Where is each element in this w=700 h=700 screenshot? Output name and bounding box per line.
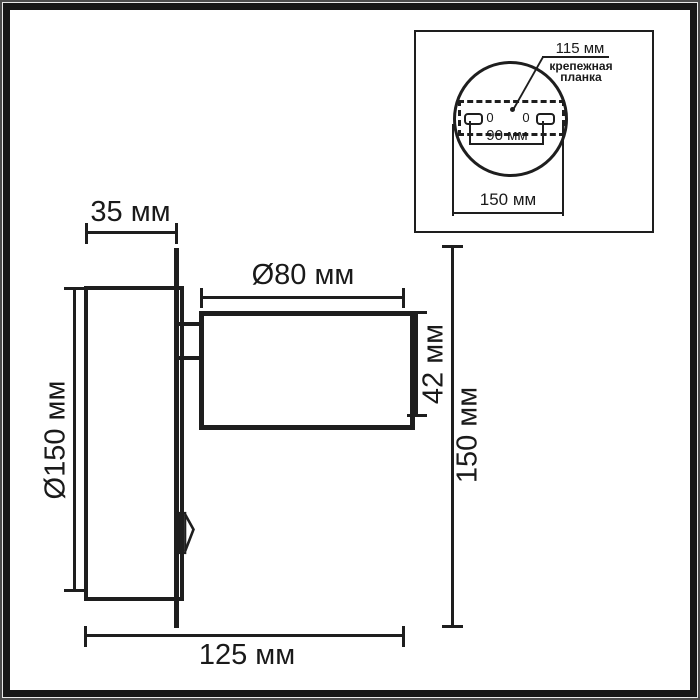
dim-head-height-label: 42 мм — [420, 324, 449, 404]
dim-hole-spacing-ext-left — [469, 121, 471, 145]
dim-overall-depth-label: 125 мм — [147, 641, 347, 670]
plate-label-line2: планка — [541, 71, 621, 83]
wall-plate — [174, 248, 179, 628]
dim-tick — [84, 626, 87, 647]
dim-head-diameter-line — [202, 296, 404, 299]
dim-overall-depth-line — [86, 634, 405, 637]
dim-tick — [402, 288, 405, 308]
dim-tick — [407, 311, 427, 314]
dim-backplate-line — [452, 212, 564, 214]
dim-tick — [64, 287, 85, 290]
dim-base-depth-label: 35 мм — [84, 198, 177, 227]
dim-base-diameter-line — [73, 288, 76, 591]
hole-mark-left: 0 — [484, 111, 496, 124]
dim-base-depth-line — [86, 231, 177, 234]
dim-base-diameter-label: Ø150 мм — [42, 381, 71, 500]
lamp-dimension-drawing: 35 мм Ø80 мм 42 мм Ø150 мм 150 мм 125 мм… — [0, 0, 700, 700]
mounting-bracket — [179, 322, 201, 360]
dim-tick — [64, 589, 85, 592]
dim-plate-width-label: 115 мм — [548, 41, 612, 56]
dim-tick — [175, 223, 178, 244]
hole-mark-right: 0 — [520, 111, 532, 124]
dim-hole-spacing-ext-right — [542, 121, 544, 145]
dim-tick — [200, 288, 203, 308]
dim-tick — [402, 626, 405, 647]
dim-hole-spacing-label: 90 мм — [472, 128, 542, 143]
dim-head-diameter-label: Ø80 мм — [202, 261, 404, 290]
screw-slot-left — [464, 113, 483, 125]
dim-tick — [407, 414, 427, 417]
dim-backplate-diameter-label: 150 мм — [452, 191, 564, 208]
toggle-switch — [176, 508, 200, 560]
dim-tick — [442, 625, 463, 628]
dim-tick — [85, 223, 88, 244]
dim-overall-height-label: 150 мм — [454, 387, 483, 483]
lamp-base-outline — [84, 286, 184, 601]
lamp-head-outline — [199, 311, 415, 430]
screw-slot-right — [536, 113, 555, 125]
dim-tick — [442, 245, 463, 248]
